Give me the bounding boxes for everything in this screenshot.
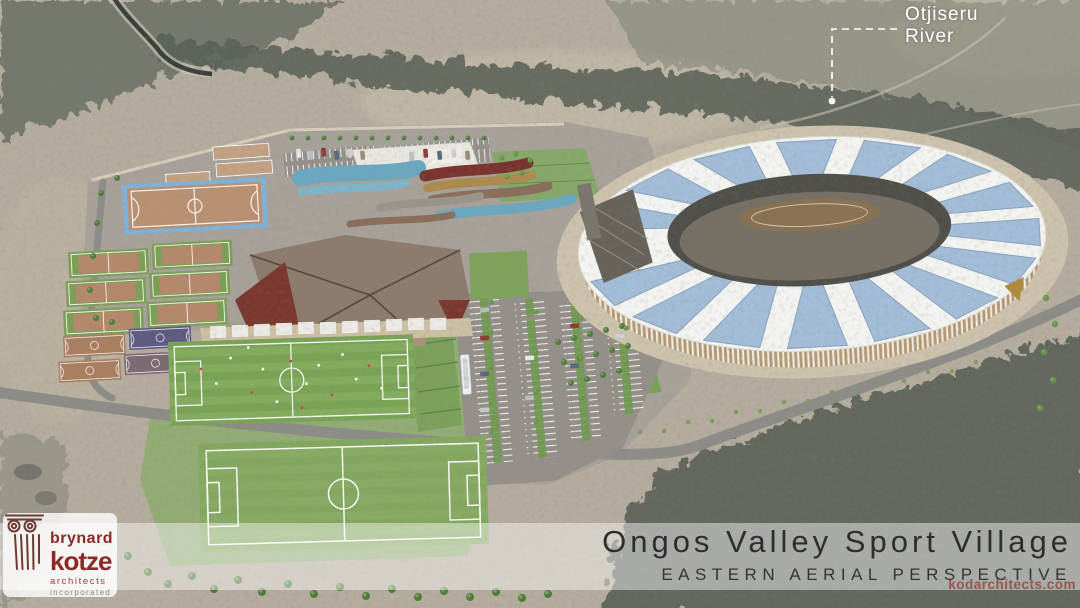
caption-band: Ongos Valley Sport Village EASTERN AERIA… xyxy=(0,523,1080,590)
project-title: Ongos Valley Sport Village xyxy=(602,524,1072,560)
architect-logo: brynard kotze architects incorporated xyxy=(3,513,117,597)
river-label-line2: River xyxy=(905,26,978,48)
logo-text: brynard kotze architects incorporated xyxy=(50,531,113,597)
watermark-url: kodarchitects.com xyxy=(948,577,1076,592)
logo-tagline-1: architects xyxy=(50,577,113,587)
column-icon xyxy=(3,513,45,573)
logo-name-2: kotze xyxy=(50,548,113,574)
terrain-texture xyxy=(0,0,1080,608)
logo-name-1: brynard xyxy=(50,531,113,547)
architectural-render-slide: Otjiseru River Ongos Valley Sport Villag… xyxy=(0,0,1080,608)
river-label-line1: Otjiseru xyxy=(905,4,978,26)
river-label: Otjiseru River xyxy=(905,4,978,48)
aerial-render-scene xyxy=(0,0,1080,608)
logo-tagline-2: incorporated xyxy=(50,589,113,597)
